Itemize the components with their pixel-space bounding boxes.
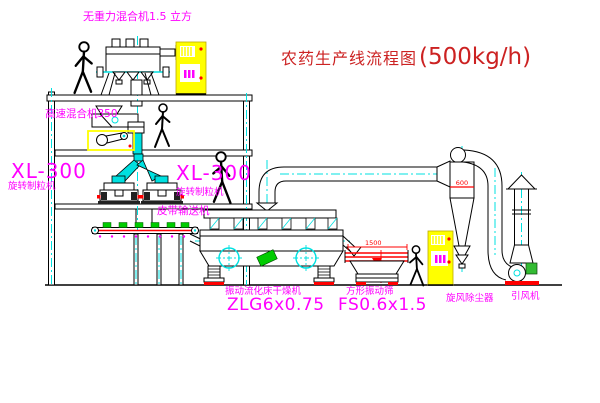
control-cabinet-ground bbox=[428, 231, 453, 285]
worker-roof bbox=[75, 42, 92, 93]
worker-floor2 bbox=[155, 104, 170, 147]
screen-length-dim: 1500 bbox=[365, 239, 382, 247]
label-high-speed-mixer: 高速混合机350 bbox=[45, 109, 118, 120]
rotary-granulator-left bbox=[97, 176, 141, 204]
cyclone-dust-collector: 600 bbox=[450, 148, 474, 269]
exhaust-duct bbox=[259, 161, 450, 203]
title-capacity: (500kg/h) bbox=[419, 44, 531, 70]
label-granulator-right-name: 旋转制粒机 bbox=[176, 188, 224, 198]
label-fan-name: 引风机 bbox=[511, 292, 540, 302]
label-cyclone-name: 旋风除尘器 bbox=[446, 294, 494, 304]
control-cabinet-roof bbox=[176, 42, 206, 94]
label-gravity-mixer: 无重力混合机1.5 立方 bbox=[83, 11, 192, 22]
label-granulator-left-name: 旋转制粒机 bbox=[8, 182, 56, 192]
label-granulator-right-model: XL-300 bbox=[176, 163, 252, 183]
drawing-title: 农药生产线流程图 (500kg/h) bbox=[281, 44, 531, 70]
label-dryer-model: ZLG6x0.75 bbox=[227, 297, 325, 314]
label-screen-model: FS0.6x1.5 bbox=[338, 297, 427, 314]
fluid-bed-dryer bbox=[190, 203, 361, 285]
cad-drawing-canvas: 600 bbox=[0, 0, 600, 403]
vibrating-screen: 1500 541 bbox=[345, 239, 408, 285]
title-text: 农药生产线流程图 bbox=[281, 45, 417, 69]
label-belt-conveyor: 皮带输送机 bbox=[157, 206, 210, 217]
worker-screen bbox=[410, 246, 423, 286]
cyclone-diameter-dim: 600 bbox=[456, 179, 468, 187]
label-granulator-left-model: XL-300 bbox=[11, 161, 87, 181]
